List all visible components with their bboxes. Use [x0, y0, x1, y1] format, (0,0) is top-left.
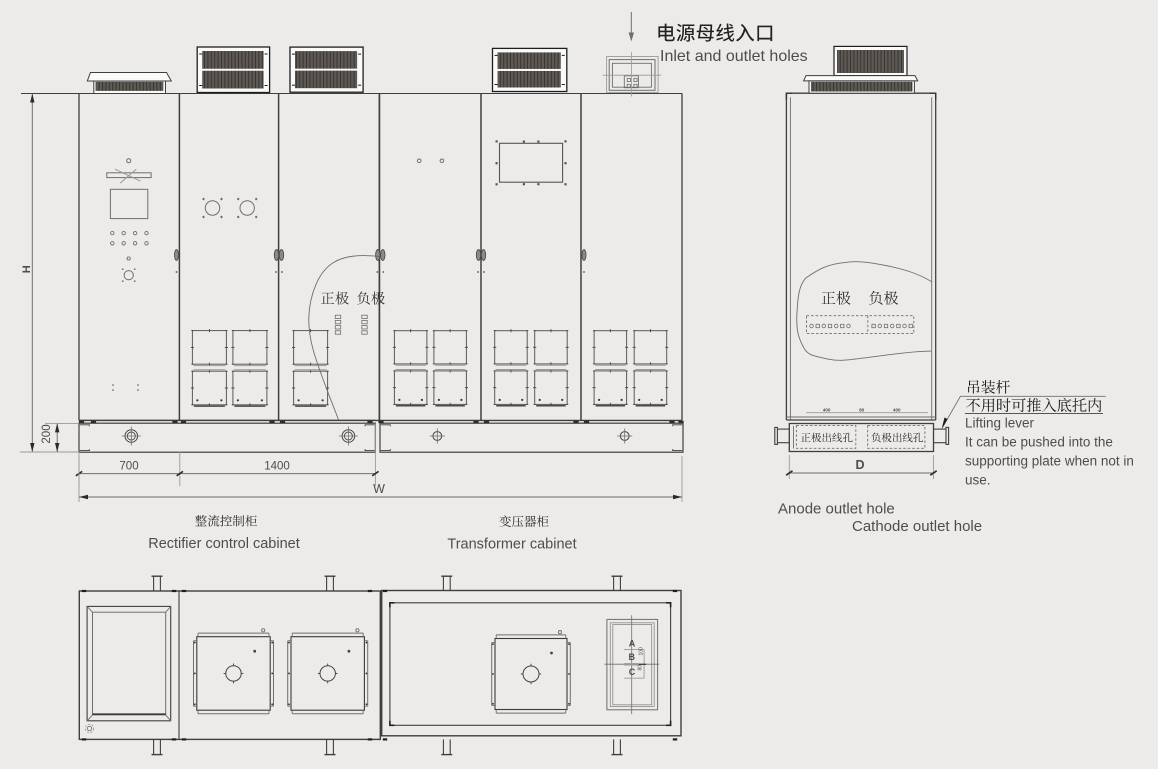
- svg-text:100: 100: [639, 647, 645, 656]
- svg-text:200: 200: [41, 424, 53, 443]
- svg-text:Lifting lever: Lifting lever: [965, 416, 1035, 431]
- svg-text:W: W: [373, 482, 385, 496]
- svg-text:H: H: [21, 265, 33, 273]
- svg-text:D: D: [855, 458, 864, 472]
- svg-text:80: 80: [859, 408, 865, 413]
- svg-text:Cathode outlet hole: Cathode outlet hole: [852, 518, 982, 535]
- svg-text:It can be pushed into the: It can be pushed into the: [965, 435, 1113, 450]
- svg-text:400: 400: [823, 408, 831, 413]
- svg-text:Rectifier control cabinet: Rectifier control cabinet: [148, 536, 300, 552]
- svg-text:Transformer cabinet: Transformer cabinet: [447, 537, 576, 553]
- svg-text:C: C: [629, 667, 636, 677]
- svg-text:B: B: [629, 652, 636, 662]
- svg-text:supporting plate when not in: supporting plate when not in: [965, 454, 1134, 469]
- svg-text:Inlet and outlet holes: Inlet and outlet holes: [660, 48, 808, 65]
- svg-text:1400: 1400: [264, 461, 290, 473]
- svg-text:400: 400: [893, 408, 901, 413]
- svg-text:80: 80: [638, 665, 644, 671]
- svg-text:use.: use.: [965, 473, 991, 488]
- svg-text:A: A: [629, 638, 636, 648]
- svg-text:700: 700: [119, 461, 138, 473]
- svg-text:Anode outlet hole: Anode outlet hole: [778, 501, 895, 518]
